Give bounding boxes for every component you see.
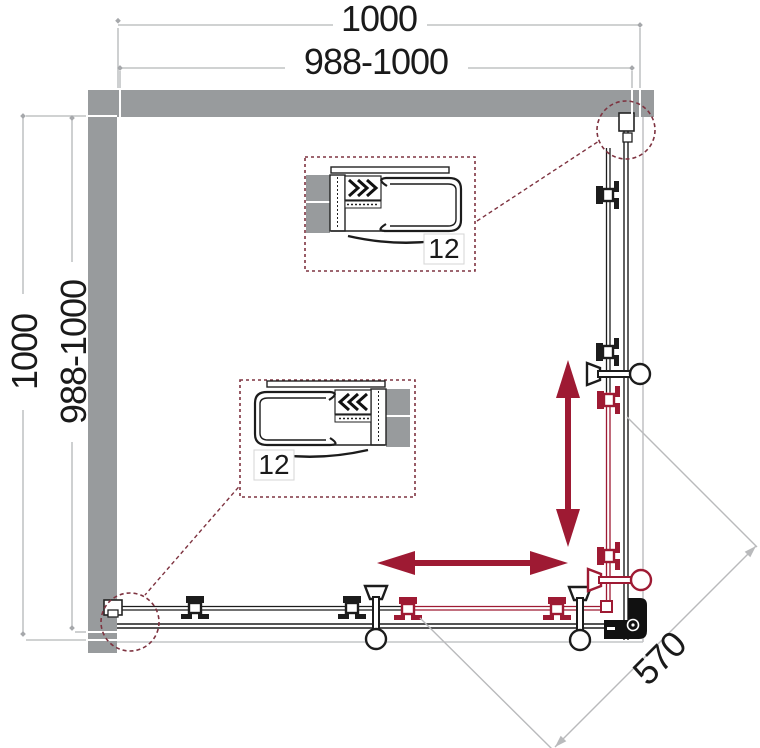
slide-arrow-vertical bbox=[556, 360, 580, 547]
leader-lower-detail bbox=[145, 482, 243, 595]
roller-clamp-red bbox=[543, 597, 571, 620]
detail-callout-upper: 12 bbox=[305, 157, 475, 271]
rollers-bottom bbox=[181, 586, 591, 650]
roller-clamp-red bbox=[597, 386, 620, 414]
door-corner-joint bbox=[601, 601, 612, 612]
leader-upper-detail bbox=[477, 141, 599, 221]
rollers-right bbox=[587, 181, 651, 591]
fixed-panel-right bbox=[624, 117, 628, 640]
roller-clamp-red bbox=[394, 597, 422, 620]
dimension-label-top-adjust: 988-1000 bbox=[304, 41, 448, 82]
roller-clamp bbox=[338, 596, 366, 619]
dimension-label-left-total: 1000 bbox=[4, 314, 45, 390]
detail-label-lower: 12 bbox=[258, 449, 289, 480]
detail-callout-lower: 12 bbox=[240, 380, 415, 497]
door-knob-red bbox=[588, 569, 651, 591]
slide-arrow-horizontal bbox=[377, 551, 568, 575]
roller-clamp bbox=[596, 338, 619, 366]
technical-drawing: 1000 988-1000 1000 988-1000 bbox=[0, 0, 760, 748]
dimension-label-left-adjust: 988-1000 bbox=[53, 280, 94, 424]
dimension-label-top-total: 1000 bbox=[341, 0, 417, 39]
wall-top bbox=[88, 90, 654, 117]
roller-clamp-red bbox=[597, 542, 620, 570]
door-knob bbox=[587, 363, 650, 385]
door-knob bbox=[365, 586, 387, 649]
roller-clamp bbox=[181, 596, 209, 619]
door-knob bbox=[569, 587, 591, 650]
roller-clamp bbox=[596, 181, 619, 209]
detail-label-upper: 12 bbox=[428, 233, 459, 264]
